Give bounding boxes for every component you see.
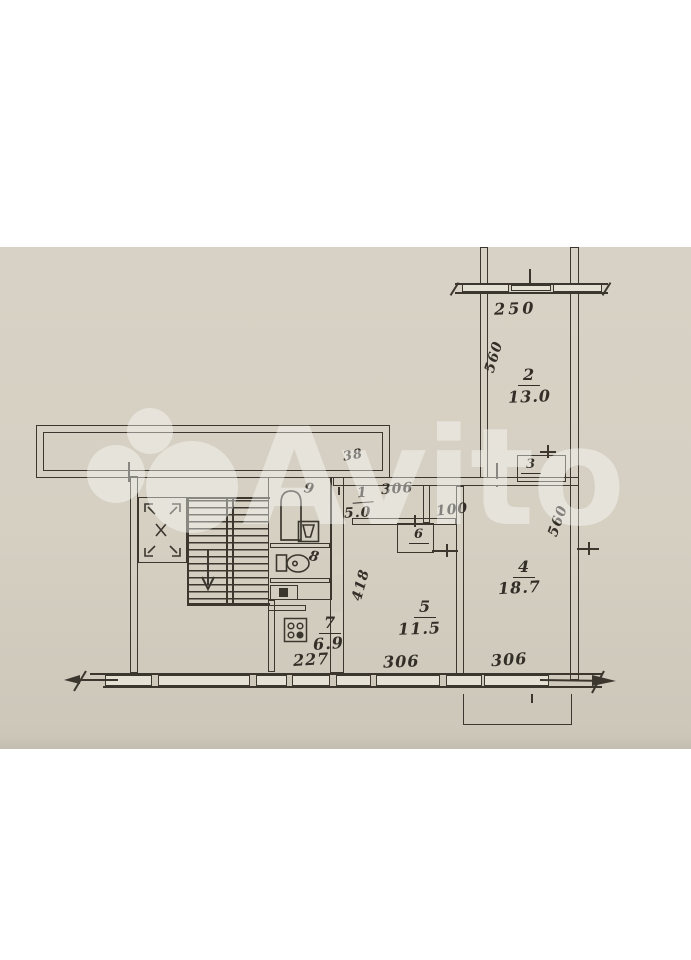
wall	[187, 603, 270, 606]
window	[446, 675, 482, 686]
door-opening	[332, 495, 343, 519]
window	[292, 675, 330, 686]
door-opening	[490, 479, 514, 485]
vent-shaft-core	[279, 588, 288, 597]
wall	[570, 247, 579, 680]
dim-hall-width: 306	[380, 480, 413, 498]
sink-icon	[297, 520, 320, 543]
dimension-arrow-right	[540, 669, 622, 697]
wall	[455, 292, 608, 294]
window	[511, 285, 551, 291]
stair-divider	[226, 499, 228, 603]
wall	[187, 497, 270, 499]
window	[376, 675, 440, 686]
balcony	[463, 694, 572, 725]
dim-niche-width: 100	[435, 500, 469, 519]
room-4-area: 18.7	[498, 577, 542, 598]
window	[158, 675, 250, 686]
door-opening	[458, 520, 463, 552]
dimension-tick	[414, 515, 416, 527]
window	[256, 675, 287, 686]
wall	[187, 497, 189, 604]
room-3-number: 3	[521, 457, 541, 472]
elevator-icon	[138, 497, 187, 563]
door-opening	[332, 555, 343, 575]
wall	[130, 476, 138, 673]
wall	[103, 686, 602, 688]
window	[336, 675, 371, 686]
stair-direction-arrow	[198, 547, 218, 593]
dimension-tick	[529, 269, 531, 284]
stair-divider	[232, 499, 234, 603]
stove-icon	[283, 617, 308, 643]
dimension-tick	[588, 542, 590, 555]
window	[462, 284, 509, 292]
wall	[270, 543, 330, 548]
dim-room4-width: 306	[490, 649, 528, 670]
room-7-number: 7	[319, 613, 341, 632]
room-6-number: 6	[409, 527, 429, 542]
dimension-tick	[446, 544, 448, 557]
room-5-number: 5	[414, 597, 436, 616]
room-2-number: 2	[518, 365, 540, 384]
dimension-tick	[531, 694, 533, 703]
room-1-area: 5.0	[344, 504, 372, 521]
room-4-number: 4	[513, 557, 535, 576]
dim-room4-depth: 560	[545, 503, 571, 539]
wall	[43, 432, 383, 471]
floor-plan-photo: 9 8 7 6.9 227 38 1 5.0 306 100	[0, 247, 691, 749]
dim-room5-depth: 418	[349, 567, 373, 602]
dim-kitchen-width: 227	[293, 649, 330, 670]
dimension-tick	[547, 445, 549, 458]
room-1-number: 1	[351, 484, 373, 501]
wall	[270, 578, 330, 583]
dim-balcony-top: 250	[494, 298, 537, 318]
dimension-tick	[128, 462, 130, 482]
wall	[268, 605, 306, 611]
window	[553, 284, 602, 292]
dimension-arrow-left	[60, 667, 122, 695]
room-2-area: 13.0	[508, 386, 552, 406]
dim-room5-width: 306	[383, 651, 420, 671]
screenshot: 9 8 7 6.9 227 38 1 5.0 306 100	[0, 0, 691, 960]
room-5-area: 11.5	[398, 618, 442, 638]
